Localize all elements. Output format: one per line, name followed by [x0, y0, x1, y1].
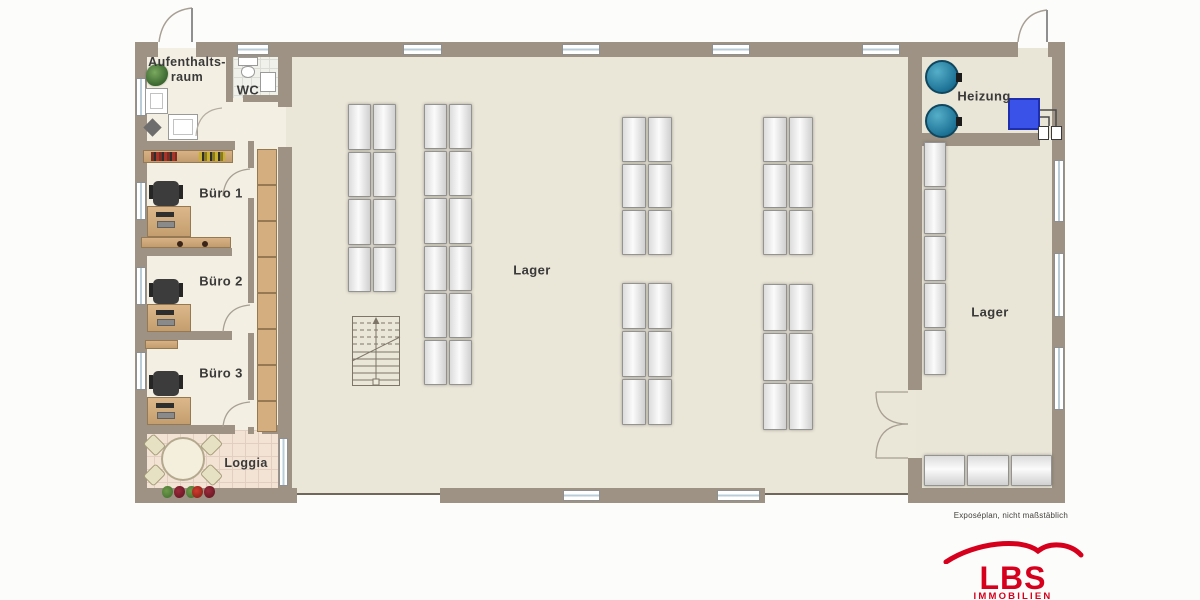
storage-rack — [348, 104, 396, 292]
rack-shelf-cell — [648, 210, 672, 255]
books — [151, 152, 177, 161]
rack-shelf-cell — [449, 198, 472, 243]
armchair — [145, 88, 168, 114]
storage-rack — [622, 283, 672, 425]
armchair — [168, 114, 198, 140]
room-label-aufenthaltsraum-line1: Aufenthalts- — [148, 55, 226, 69]
storage-rack — [424, 104, 472, 385]
rack-shelf-cell — [622, 117, 646, 162]
floorplan-canvas: Aufenthalts- raum WC Büro 1 Büro 2 Büro … — [0, 0, 1200, 600]
rack-shelf-cell — [449, 151, 472, 196]
rack-shelf-cell — [789, 164, 813, 209]
rack-shelf-cell — [789, 333, 813, 380]
rack-shelf-cell — [424, 246, 447, 291]
connection-box — [1038, 126, 1049, 140]
keyboard — [157, 319, 175, 326]
wall — [908, 42, 922, 390]
flower-box — [192, 486, 215, 498]
room-label-buero3: Büro 3 — [199, 366, 243, 381]
loggia-glass-door — [279, 438, 288, 486]
rack-shelf-cell — [924, 283, 946, 328]
rack-shelf-cell — [648, 117, 672, 162]
room-label-buero2: Büro 2 — [199, 274, 243, 289]
room-label-heizung: Heizung — [957, 89, 1010, 104]
rack-shelf-cell — [1011, 455, 1052, 486]
rack-shelf-cell — [424, 293, 447, 338]
rack-shelf-cell — [348, 247, 371, 293]
decor-dot — [202, 241, 208, 247]
rack-shelf-cell — [373, 152, 396, 198]
window — [237, 44, 269, 55]
keyboard — [157, 221, 175, 228]
window — [403, 44, 442, 55]
office-chair — [153, 371, 179, 396]
rack-shelf-cell — [622, 331, 646, 377]
rack-shelf-cell — [424, 198, 447, 243]
rack-shelf-cell — [449, 104, 472, 149]
office-chair — [153, 279, 179, 304]
rack-shelf-cell — [924, 455, 965, 486]
toilet-bowl — [241, 66, 255, 78]
storage-rack — [763, 117, 813, 255]
rack-shelf-cell — [763, 117, 787, 162]
rack-shelf-cell — [622, 164, 646, 209]
rack-shelf-cell — [373, 247, 396, 293]
rack-shelf-cell — [924, 189, 946, 234]
desk — [147, 397, 191, 425]
window — [136, 352, 146, 390]
rack-shelf-cell — [789, 117, 813, 162]
rack-shelf-cell — [648, 164, 672, 209]
tank-valve — [956, 73, 962, 82]
plan-caption: Exposéplan, nicht maßstäblich — [954, 511, 1068, 520]
monitor — [156, 310, 174, 315]
rack-shelf-cell — [763, 383, 787, 430]
wall — [135, 425, 235, 434]
sideboard — [141, 237, 231, 248]
rack-shelf-cell — [373, 199, 396, 245]
room-label-lager-main: Lager — [513, 263, 550, 278]
toilet-cistern — [238, 57, 258, 66]
rack-shelf-cell — [763, 333, 787, 380]
keyboard — [157, 412, 175, 419]
boiler-tank — [925, 104, 959, 138]
storage-rack — [622, 117, 672, 255]
rack-shelf-cell — [789, 284, 813, 331]
rack-shelf-cell — [789, 210, 813, 255]
window — [562, 44, 600, 55]
desk — [147, 304, 191, 332]
connection-box — [1051, 126, 1062, 140]
rack-shelf-cell — [967, 455, 1008, 486]
window — [717, 490, 760, 501]
door-swing — [1018, 10, 1047, 42]
monitor — [156, 212, 174, 217]
wall — [248, 198, 254, 303]
wall — [280, 488, 297, 503]
rack-shelf-cell — [763, 284, 787, 331]
decor-dot — [177, 241, 183, 247]
rack-shelf-cell — [348, 199, 371, 245]
wall — [248, 333, 254, 400]
window — [712, 44, 750, 55]
room-label-buero1: Büro 1 — [199, 186, 243, 201]
wall — [135, 141, 235, 150]
room-label-loggia: Loggia — [224, 456, 267, 470]
rack-shelf-cell — [424, 340, 447, 385]
boiler-tank — [925, 60, 959, 94]
room-label-lager-right: Lager — [971, 305, 1008, 320]
wall — [135, 331, 232, 340]
rack-shelf-cell — [648, 283, 672, 329]
corridor-cabinets — [257, 149, 277, 432]
window — [1054, 347, 1064, 410]
rack-shelf-cell — [449, 340, 472, 385]
washbasin — [260, 72, 276, 92]
rack-shelf-cell — [763, 210, 787, 255]
books — [199, 152, 225, 161]
logo-subtext: IMMOBILIEN — [940, 591, 1086, 600]
rack-shelf-cell — [648, 379, 672, 425]
window — [563, 490, 600, 501]
window — [1054, 253, 1064, 317]
rack-shelf-cell — [449, 293, 472, 338]
storage-rack — [924, 455, 1052, 486]
wall — [248, 427, 254, 434]
rack-shelf-cell — [924, 142, 946, 187]
lbs-immobilien-logo: LBS IMMOBILIEN — [940, 538, 1086, 598]
rack-shelf-cell — [622, 210, 646, 255]
rack-shelf-cell — [424, 151, 447, 196]
bookshelf — [143, 150, 233, 163]
rack-shelf-cell — [648, 331, 672, 377]
rack-shelf-cell — [348, 104, 371, 150]
rack-shelf-cell — [622, 283, 646, 329]
rack-shelf-cell — [789, 383, 813, 430]
rack-shelf-cell — [373, 104, 396, 150]
window — [136, 267, 146, 305]
wall — [248, 141, 254, 168]
gate-opening-line — [297, 493, 440, 495]
rack-shelf-cell — [924, 330, 946, 375]
rack-shelf-cell — [763, 164, 787, 209]
window — [862, 44, 900, 55]
rack-shelf-cell — [449, 246, 472, 291]
room-label-wc: WC — [237, 83, 259, 98]
monitor — [156, 403, 174, 408]
rack-shelf-cell — [924, 236, 946, 281]
rack-shelf-cell — [348, 152, 371, 198]
window — [1054, 160, 1064, 222]
office-chair — [153, 181, 179, 206]
round-table — [161, 437, 205, 481]
tank-valve — [956, 117, 962, 126]
logo-text: LBS — [940, 563, 1086, 593]
wall — [908, 488, 1065, 503]
room-label-aufenthaltsraum-line2: raum — [171, 70, 203, 84]
wall — [135, 248, 232, 256]
gate-opening-line — [765, 493, 908, 495]
storage-rack — [924, 142, 946, 375]
window — [136, 182, 146, 220]
door-swing — [159, 8, 192, 42]
storage-rack — [763, 284, 813, 430]
rack-shelf-cell — [622, 379, 646, 425]
desk — [147, 206, 191, 237]
sideboard — [145, 340, 178, 349]
rack-shelf-cell — [424, 104, 447, 149]
heating-unit — [1008, 98, 1040, 130]
wall — [226, 42, 233, 102]
